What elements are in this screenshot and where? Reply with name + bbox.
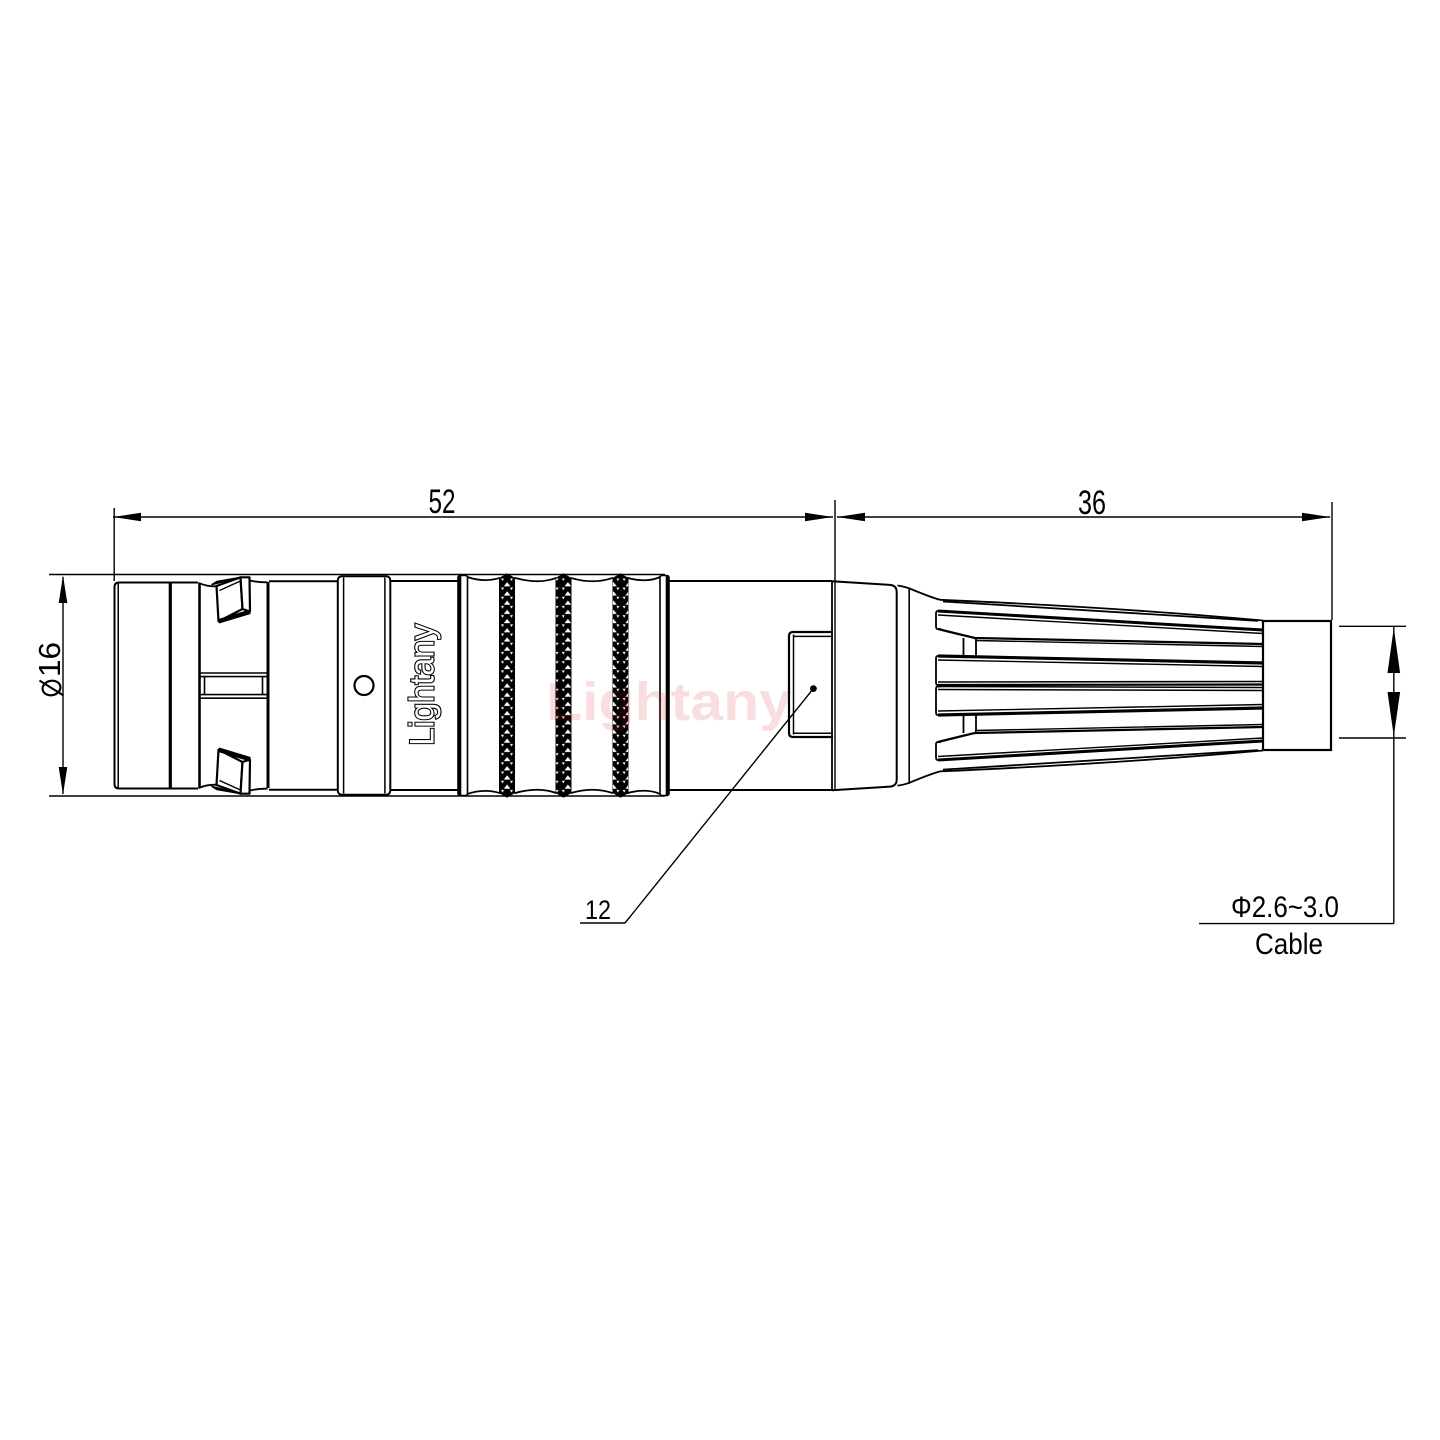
svg-text:Lightany: Lightany [404,624,442,746]
svg-text:Φ2.6~3.0: Φ2.6~3.0 [1231,891,1339,924]
svg-text:Cable: Cable [1255,928,1323,961]
svg-text:16: 16 [32,642,67,677]
svg-text:52: 52 [429,483,456,521]
svg-text:Lightany: Lightany [546,672,792,732]
svg-text:12: 12 [585,895,611,925]
svg-text:36: 36 [1078,484,1106,522]
